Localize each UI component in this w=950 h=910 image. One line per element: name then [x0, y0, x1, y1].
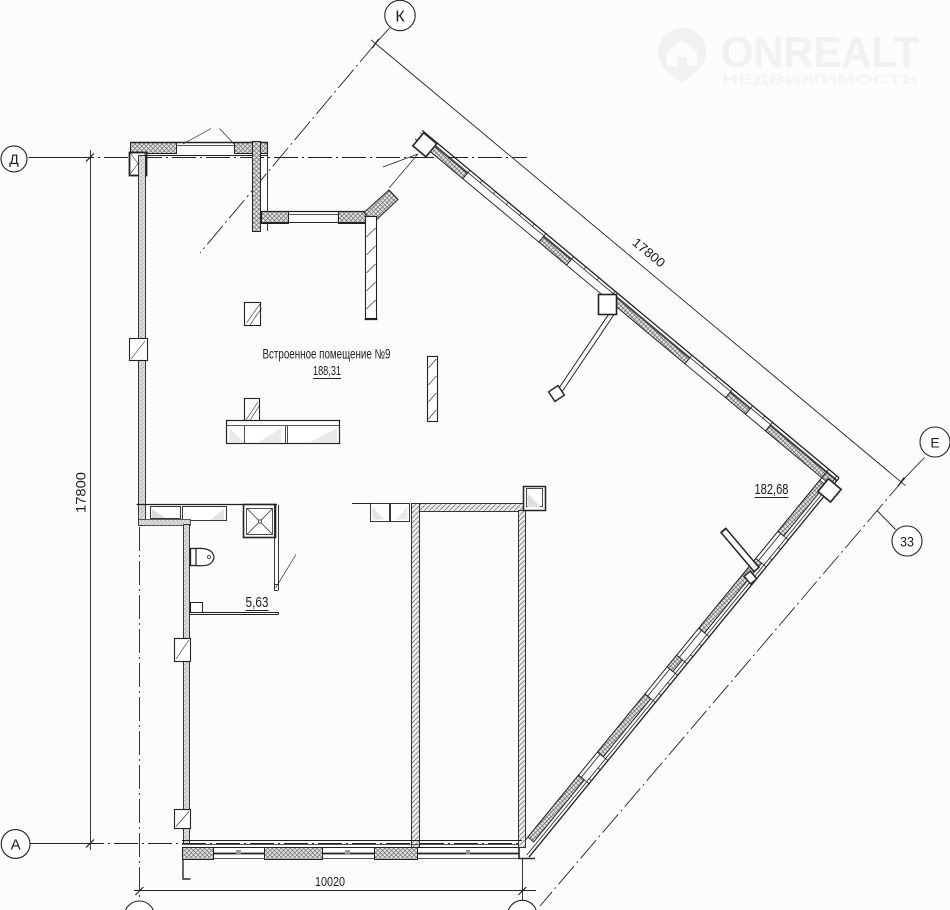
svg-text:Е: Е: [930, 435, 939, 451]
svg-text:К: К: [395, 9, 405, 26]
svg-text:Д: Д: [9, 151, 19, 167]
svg-text:188,31: 188,31: [313, 363, 341, 378]
svg-text:33: 33: [900, 534, 914, 550]
svg-text:Встроенное помещение №9: Встроенное помещение №9: [263, 347, 391, 362]
svg-text:182,68: 182,68: [755, 481, 789, 498]
svg-text:17800: 17800: [74, 472, 89, 513]
svg-text:5,63: 5,63: [246, 594, 269, 611]
svg-text:А: А: [11, 837, 21, 854]
svg-text:НЕДВИЖИМОСТЬ: НЕДВИЖИМОСТЬ: [722, 71, 918, 87]
svg-text:ONREALT: ONREALT: [721, 28, 919, 77]
svg-text:10020: 10020: [315, 874, 345, 889]
